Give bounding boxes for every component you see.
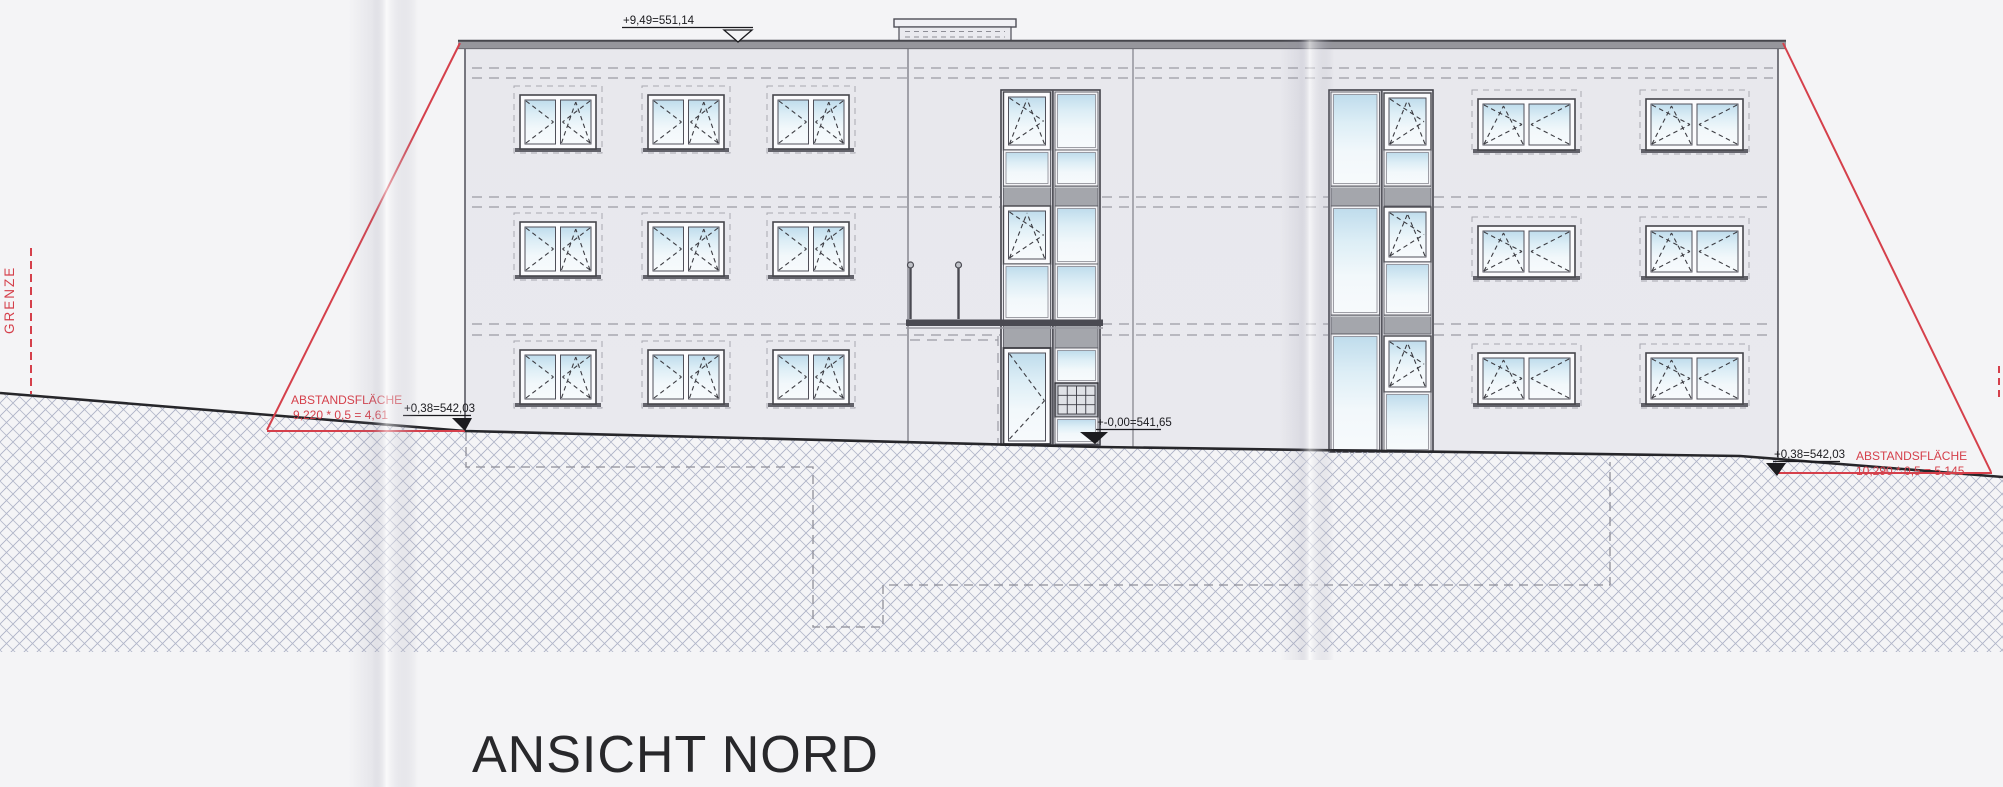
- curtain-wall-glass: [1055, 348, 1098, 383]
- window: [514, 213, 602, 280]
- glazing-glass: [1334, 337, 1378, 450]
- curtain-wall-spandrel: [1331, 315, 1380, 334]
- drawing-title: ANSICHT NORD: [472, 726, 879, 784]
- window: [1640, 217, 1749, 281]
- glazing-glass: [1006, 153, 1048, 184]
- window-pane: [1483, 231, 1524, 272]
- spandrel-panel: [1384, 315, 1431, 334]
- glazing-glass: [1006, 267, 1048, 318]
- window-pane: [525, 100, 556, 144]
- curtain-wall-sash: [1384, 207, 1431, 262]
- setback-right-formula: 10,290 * 0,5 = 5,145: [1856, 464, 1965, 478]
- curtain-wall-sash: [1384, 336, 1431, 392]
- window: [642, 213, 730, 280]
- rooftop-structure: [894, 19, 1016, 42]
- curtain-wall-glass: [1055, 264, 1098, 320]
- window-pane: [778, 355, 809, 399]
- window: [642, 86, 730, 153]
- spandrel-panel: [1384, 186, 1431, 206]
- window-pane: [814, 100, 845, 144]
- window-pane: [1651, 104, 1692, 145]
- curtain-wall-sash: [1384, 93, 1431, 150]
- curtain-wall-glass: [1055, 92, 1098, 150]
- window-pane: [525, 227, 556, 271]
- window-pane: [689, 355, 720, 399]
- curtain-wall-glass: [1055, 150, 1098, 186]
- sash-glass: [1009, 211, 1046, 259]
- curtain-wall-glass: [1004, 150, 1051, 186]
- curtain-wall-door: [1004, 348, 1051, 444]
- window-pane: [653, 227, 684, 271]
- elevation-drawing-sheet: ABSTANDSFLÄCHE 9,220 * 0,5 = 4,61 ABSTAN…: [0, 0, 2003, 787]
- window: [1640, 90, 1749, 154]
- glazing-glass: [1387, 395, 1429, 450]
- glazing-glass: [1334, 95, 1378, 184]
- window-pane: [1697, 104, 1738, 145]
- stair-glazing-right: [1329, 90, 1433, 452]
- curtain-wall-spandrel: [1384, 186, 1431, 206]
- spandrel-panel: [1331, 315, 1380, 334]
- window-pane: [778, 227, 809, 271]
- window-pane: [1529, 358, 1570, 399]
- spandrel-panel: [1055, 186, 1098, 206]
- entrance-level-text: +-0,00=541,65: [1097, 417, 1172, 429]
- curtain-wall-glass: [1055, 206, 1098, 264]
- boundary-label: GRENZE: [2, 266, 17, 334]
- window: [1640, 344, 1749, 408]
- glazing-glass: [1058, 209, 1096, 262]
- curtain-wall-mailbox: [1055, 383, 1098, 417]
- curtain-wall-glass: [1384, 392, 1431, 452]
- paper-fold: [1280, 40, 1334, 660]
- elevation-svg: ABSTANDSFLÄCHE 9,220 * 0,5 = 4,61 ABSTAN…: [0, 0, 2003, 787]
- window: [514, 86, 602, 153]
- window-pane: [814, 355, 845, 399]
- window-pane: [525, 355, 556, 399]
- window: [767, 341, 855, 408]
- glazing-glass: [1334, 209, 1378, 313]
- curtain-wall-sash: [1004, 92, 1051, 150]
- curtain-wall-glass: [1384, 262, 1431, 315]
- spandrel-panel: [1331, 186, 1380, 206]
- window-pane: [1483, 104, 1524, 145]
- window-pane: [1529, 104, 1570, 145]
- window-pane: [561, 355, 592, 399]
- building-facade: [465, 46, 1778, 459]
- curtain-wall-glass: [1004, 264, 1051, 320]
- window-pane: [689, 227, 720, 271]
- window-pane: [653, 355, 684, 399]
- window: [1472, 217, 1581, 281]
- glazing-glass: [1387, 265, 1429, 313]
- glazing-glass: [1058, 351, 1096, 381]
- window-pane: [1651, 358, 1692, 399]
- curtain-wall-spandrel: [1331, 186, 1380, 206]
- window: [1472, 344, 1581, 408]
- glazing-glass: [1387, 153, 1429, 184]
- window-pane: [778, 100, 809, 144]
- curtain-wall-spandrel: [1384, 315, 1431, 334]
- curtain-wall-glass: [1331, 92, 1380, 186]
- stair-glazing-entrance: [1001, 90, 1100, 445]
- window-pane: [1651, 231, 1692, 272]
- curtain-wall-sash: [1004, 206, 1051, 264]
- curtain-wall-glass: [1331, 334, 1380, 452]
- window-pane: [689, 100, 720, 144]
- rod-anchor: [956, 262, 962, 268]
- roof-parapet: [458, 40, 1786, 49]
- window: [767, 86, 855, 153]
- window-pane: [1529, 231, 1570, 272]
- roof-level-text: +9,49=551,14: [623, 15, 695, 27]
- sash-glass: [1389, 98, 1426, 145]
- window: [767, 213, 855, 280]
- window-pane: [1697, 231, 1738, 272]
- setback-right-label: ABSTANDSFLÄCHE: [1856, 449, 1967, 463]
- window: [642, 341, 730, 408]
- window-pane: [1483, 358, 1524, 399]
- sash-glass: [1389, 212, 1426, 257]
- curtain-wall-glass: [1331, 206, 1380, 315]
- curtain-wall-spandrel: [1055, 186, 1098, 206]
- window-pane: [1697, 358, 1738, 399]
- window-pane: [814, 227, 845, 271]
- window-pane: [653, 100, 684, 144]
- curtain-wall-spandrel: [1004, 186, 1051, 206]
- sash-glass: [1389, 341, 1426, 387]
- door-glass: [1009, 353, 1046, 441]
- glazing-glass: [1058, 267, 1096, 318]
- spandrel-panel: [1004, 186, 1051, 206]
- glazing-glass: [1058, 95, 1096, 148]
- window: [514, 341, 602, 408]
- canopy-slab: [906, 320, 1103, 327]
- window-pane: [561, 100, 592, 144]
- window-pane: [561, 227, 592, 271]
- right-ground-level-text: +0,38=542,03: [1774, 449, 1845, 461]
- window: [1472, 90, 1581, 154]
- curtain-wall-glass: [1384, 150, 1431, 186]
- rod-anchor: [908, 262, 914, 268]
- paper-fold: [348, 0, 418, 787]
- glazing-glass: [1058, 153, 1096, 184]
- sash-glass: [1009, 97, 1046, 145]
